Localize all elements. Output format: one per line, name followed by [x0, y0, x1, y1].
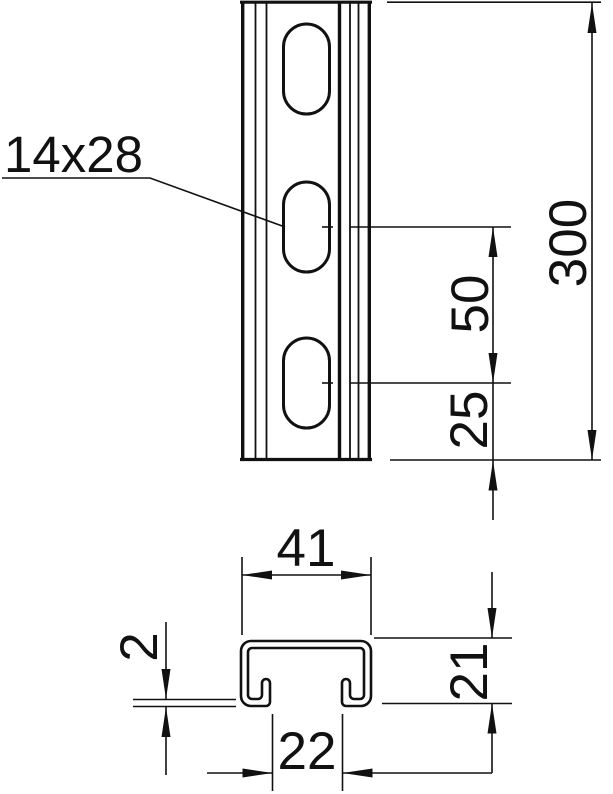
arrowhead-up [489, 227, 498, 257]
dim-slot-end-offset: 25 [440, 391, 499, 491]
arrowhead-down [489, 353, 498, 383]
arrowhead-down [162, 669, 171, 699]
arrowhead-down [588, 430, 597, 460]
dim-slot-end-value: 25 [440, 391, 499, 450]
dim-thickness: 2 [110, 622, 236, 775]
dim-length-value: 300 [539, 199, 598, 287]
dim-width: 41 [242, 519, 371, 635]
arrowhead-left [343, 769, 373, 778]
dim-height-value: 21 [440, 643, 499, 702]
slot-size-label: 14x28 [4, 126, 143, 183]
dim-opening: 22 [207, 714, 492, 791]
arrowhead-left [242, 571, 272, 580]
arrowhead-down [488, 608, 497, 638]
arrowhead-up [489, 461, 498, 491]
drawing-page: 14x28 300 50 25 41 [0, 0, 613, 794]
arrowhead-right [243, 769, 273, 778]
slot-top [284, 24, 330, 114]
cross-section-view [241, 641, 371, 706]
front-view-rail [240, 2, 372, 459]
dim-width-value: 41 [277, 519, 336, 578]
arrowhead-right [341, 571, 371, 580]
c-profile-outline [241, 641, 371, 706]
arrowhead-up [162, 707, 171, 737]
dim-height: 21 [374, 572, 512, 773]
dim-thickness-value: 2 [110, 632, 169, 661]
arrowhead-up [588, 3, 597, 33]
arrowhead-up [488, 704, 497, 734]
dim-slot-spacing-value: 50 [441, 275, 500, 334]
technical-drawing: 14x28 300 50 25 41 [0, 0, 613, 794]
dim-opening-value: 22 [278, 722, 337, 781]
